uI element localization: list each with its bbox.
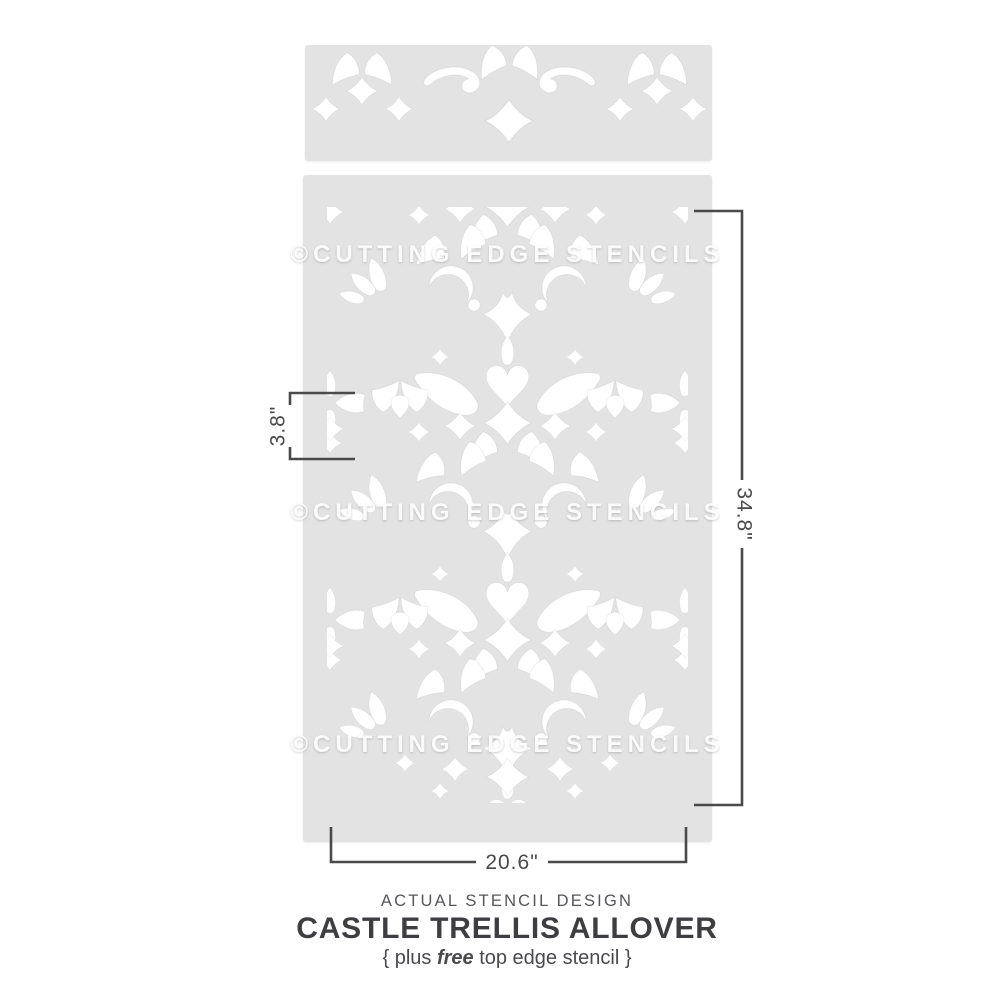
dimension-line	[290, 447, 355, 459]
dimension-label-stencil-width: 20.6"	[485, 851, 538, 874]
caption-subtitle: { plus free top edge stencil }	[7, 947, 1000, 970]
top-edge-stencil-pattern	[305, 45, 712, 161]
watermark-text: ©CUTTING EDGE STENCILS	[283, 240, 732, 270]
dimension-line	[694, 211, 742, 480]
subtitle-suffix: top edge stencil }	[474, 947, 632, 969]
dimension-line	[290, 393, 355, 405]
top-edge-stencil-panel	[305, 45, 712, 161]
product-title: CASTLE TRELLIS ALLOVER	[7, 912, 1000, 946]
dimension-label-repeat-height: 3.8"	[267, 406, 290, 447]
product-image: ©CUTTING EDGE STENCILS ©CUTTING EDGE STE…	[0, 0, 1000, 1000]
caption-eyebrow: ACTUAL STENCIL DESIGN	[7, 892, 1000, 911]
dimension-stencil-width: 20.6"	[322, 820, 697, 880]
main-stencil-panel: ©CUTTING EDGE STENCILS ©CUTTING EDGE STE…	[303, 175, 712, 842]
dimension-label-stencil-height: 34.8"	[732, 487, 755, 540]
dimension-line	[331, 827, 476, 862]
watermark-text: ©CUTTING EDGE STENCILS	[283, 498, 732, 528]
dimension-line	[548, 827, 686, 862]
watermark-text: ©CUTTING EDGE STENCILS	[283, 730, 732, 760]
dimension-line	[694, 548, 742, 805]
dimension-stencil-height: 34.8"	[688, 203, 758, 813]
dimension-repeat-height: 3.8"	[265, 386, 360, 466]
subtitle-emphasis: free	[437, 947, 474, 969]
subtitle-prefix: { plus	[382, 947, 436, 969]
